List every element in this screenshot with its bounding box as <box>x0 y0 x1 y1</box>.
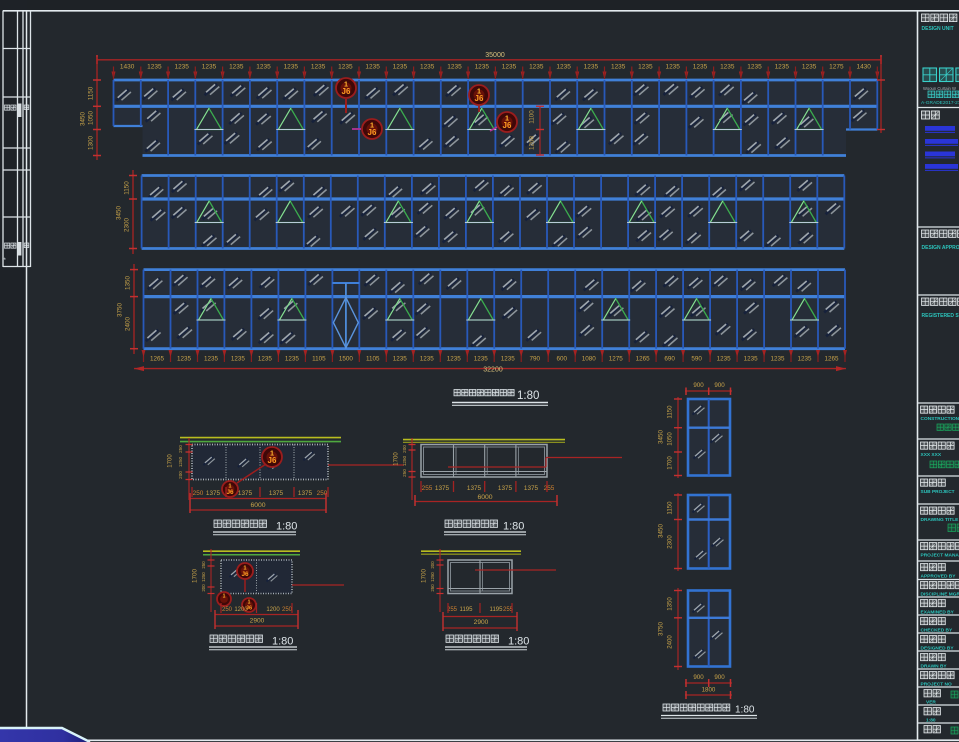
svg-text:1235: 1235 <box>475 64 490 71</box>
svg-text:250: 250 <box>282 607 293 613</box>
svg-text:J6: J6 <box>226 489 234 496</box>
svg-text:1235: 1235 <box>229 64 244 71</box>
svg-text:900: 900 <box>714 382 725 389</box>
svg-text:1700: 1700 <box>667 456 674 470</box>
svg-text:1235: 1235 <box>365 64 380 71</box>
svg-text:DISCIPLINE MGR: DISCIPLINE MGR <box>921 592 959 598</box>
svg-text:1:80: 1:80 <box>517 390 539 402</box>
svg-text:1:80: 1:80 <box>276 521 297 533</box>
svg-text:1235: 1235 <box>393 356 408 363</box>
svg-text:250: 250 <box>201 561 206 569</box>
svg-text:1150: 1150 <box>124 181 131 195</box>
svg-text:1375: 1375 <box>467 485 482 492</box>
svg-text:1700: 1700 <box>421 569 428 584</box>
svg-text:1235: 1235 <box>231 356 246 363</box>
svg-text:Wooun Curtain W: Wooun Curtain W <box>923 86 956 91</box>
svg-text:1235: 1235 <box>802 64 817 71</box>
svg-text:1275: 1275 <box>609 356 624 363</box>
svg-text:6000: 6000 <box>250 502 265 509</box>
svg-text:1235: 1235 <box>638 64 653 71</box>
svg-text:1235: 1235 <box>256 64 271 71</box>
svg-text:1235: 1235 <box>258 356 273 363</box>
svg-text:DRAWN BY: DRAWN BY <box>921 664 948 670</box>
svg-text:1250: 1250 <box>430 572 435 582</box>
svg-text:1050: 1050 <box>88 111 95 126</box>
svg-text:1235: 1235 <box>665 64 680 71</box>
svg-text:250: 250 <box>402 469 407 477</box>
svg-text:3450: 3450 <box>80 112 87 127</box>
svg-text:3750: 3750 <box>658 622 665 637</box>
svg-text:J6: J6 <box>503 121 512 130</box>
svg-text:2900: 2900 <box>474 619 489 626</box>
svg-text:1235: 1235 <box>204 356 219 363</box>
svg-text:1235: 1235 <box>420 356 435 363</box>
svg-text:1235: 1235 <box>529 64 544 71</box>
svg-text:J6: J6 <box>475 94 484 103</box>
svg-text:1080: 1080 <box>582 356 597 363</box>
svg-text:1150: 1150 <box>88 86 95 100</box>
svg-text:1235: 1235 <box>447 64 462 71</box>
svg-text:3450: 3450 <box>658 430 665 445</box>
svg-text:1250: 1250 <box>402 455 407 466</box>
svg-text:1235: 1235 <box>556 64 571 71</box>
svg-text:1050: 1050 <box>667 432 674 446</box>
svg-text:1375: 1375 <box>498 485 513 492</box>
svg-text:1268: 1268 <box>529 136 536 151</box>
svg-text:SUB PROJECT: SUB PROJECT <box>921 489 955 495</box>
svg-text:1235: 1235 <box>311 64 326 71</box>
svg-text:1235: 1235 <box>285 356 300 363</box>
svg-text:255: 255 <box>422 485 433 492</box>
svg-text:1235: 1235 <box>775 64 790 71</box>
svg-text:1700: 1700 <box>192 569 199 584</box>
svg-text:250: 250 <box>178 445 183 453</box>
svg-text:1235: 1235 <box>202 64 217 71</box>
svg-text:J6: J6 <box>368 128 377 137</box>
svg-text:2300: 2300 <box>667 535 674 549</box>
svg-text:900: 900 <box>693 674 704 681</box>
svg-text:1235: 1235 <box>797 356 812 363</box>
svg-text:1105: 1105 <box>366 356 380 363</box>
svg-text:1235: 1235 <box>717 356 732 363</box>
svg-text:1235: 1235 <box>501 356 516 363</box>
svg-text:1235: 1235 <box>174 64 189 71</box>
svg-text:1:80: 1:80 <box>272 636 293 648</box>
svg-text:1375: 1375 <box>524 485 539 492</box>
svg-text:6000: 6000 <box>477 494 492 501</box>
svg-text:1150: 1150 <box>667 501 674 515</box>
svg-text:250: 250 <box>430 584 435 592</box>
svg-text:1500: 1500 <box>339 356 354 363</box>
svg-text:1235: 1235 <box>611 64 626 71</box>
svg-text:1235: 1235 <box>447 356 462 363</box>
svg-text:1235: 1235 <box>584 64 599 71</box>
svg-text:1100: 1100 <box>529 110 536 124</box>
svg-text:1375: 1375 <box>269 490 284 497</box>
svg-text:1700: 1700 <box>394 452 400 466</box>
svg-text:1375: 1375 <box>298 490 313 497</box>
svg-text:1250: 1250 <box>178 456 183 467</box>
svg-text:1800: 1800 <box>702 687 716 694</box>
svg-text:200: 200 <box>402 445 407 453</box>
svg-text:1350: 1350 <box>125 276 132 291</box>
svg-text:2900: 2900 <box>250 618 265 625</box>
svg-text:1265: 1265 <box>824 356 839 363</box>
svg-text:1375: 1375 <box>435 485 450 492</box>
svg-text:PROJECT NO: PROJECT NO <box>921 682 952 688</box>
svg-text:1235: 1235 <box>284 64 299 71</box>
svg-text:1235: 1235 <box>502 64 517 71</box>
svg-text:PROJECT MANAGER: PROJECT MANAGER <box>921 553 959 559</box>
svg-text:1:80: 1:80 <box>508 636 529 648</box>
svg-text:1235: 1235 <box>744 356 759 363</box>
svg-text:1235: 1235 <box>747 64 762 71</box>
svg-text:J6: J6 <box>342 87 351 96</box>
svg-text:32200: 32200 <box>483 367 503 374</box>
svg-text:REGISTERED SEAL: REGISTERED SEAL <box>922 313 959 319</box>
svg-text:35000: 35000 <box>485 52 505 59</box>
svg-text:A-GRADE2017-27: A-GRADE2017-27 <box>921 100 959 106</box>
svg-text:3750: 3750 <box>117 303 124 318</box>
svg-text:1300: 1300 <box>88 136 95 151</box>
svg-text:DESIGNED BY: DESIGNED BY <box>921 646 955 652</box>
svg-text:590: 590 <box>691 356 702 363</box>
svg-text:1200: 1200 <box>266 607 280 613</box>
svg-text:3450: 3450 <box>116 206 123 221</box>
svg-text:1:80: 1:80 <box>503 521 524 533</box>
svg-text:1375: 1375 <box>206 490 221 497</box>
svg-text:1235: 1235 <box>770 356 785 363</box>
svg-text:250: 250 <box>193 490 204 497</box>
svg-text:200: 200 <box>201 584 206 592</box>
svg-text:1430: 1430 <box>120 64 135 71</box>
svg-text:1275: 1275 <box>829 64 844 71</box>
svg-text:1235: 1235 <box>177 356 192 363</box>
svg-text:2400: 2400 <box>125 317 132 332</box>
svg-text:900: 900 <box>714 674 725 681</box>
svg-text:EXAMINED BY: EXAMINED BY <box>921 610 955 616</box>
svg-text:1:80: 1:80 <box>926 718 936 724</box>
svg-text:DESIGN APPROVAL: DESIGN APPROVAL <box>922 245 959 251</box>
svg-text:1:80: 1:80 <box>735 705 755 716</box>
svg-text:CONSTRUCTION: CONSTRUCTION <box>921 416 959 422</box>
svg-text:200: 200 <box>430 561 435 569</box>
svg-text:690: 690 <box>664 356 675 363</box>
svg-text:1250: 1250 <box>201 572 206 582</box>
svg-text:1235: 1235 <box>420 64 435 71</box>
svg-text:1200: 1200 <box>234 607 248 613</box>
svg-text:900: 900 <box>693 382 704 389</box>
svg-text:1235: 1235 <box>393 64 408 71</box>
svg-text:2300: 2300 <box>124 218 131 233</box>
svg-text:1235: 1235 <box>720 64 735 71</box>
svg-text:1235: 1235 <box>338 64 353 71</box>
svg-text:J6: J6 <box>241 571 249 578</box>
svg-text:1235: 1235 <box>474 356 489 363</box>
svg-text:1350: 1350 <box>667 597 674 611</box>
svg-text:1105: 1105 <box>312 356 326 363</box>
svg-text:1195: 1195 <box>460 607 474 613</box>
svg-text:600: 600 <box>556 356 567 363</box>
svg-text:1150: 1150 <box>667 405 674 419</box>
svg-text:1700: 1700 <box>168 454 174 468</box>
svg-text:J6: J6 <box>268 456 277 465</box>
svg-text:255: 255 <box>544 485 555 492</box>
svg-text:VER: VER <box>926 700 936 706</box>
svg-text:1195: 1195 <box>490 607 504 613</box>
svg-text:CHECKED BY: CHECKED BY <box>921 628 954 634</box>
svg-text:DESIGN UNIT: DESIGN UNIT <box>922 26 954 32</box>
svg-text:1265: 1265 <box>636 356 651 363</box>
svg-text:1: 1 <box>223 594 226 600</box>
svg-text:1235: 1235 <box>693 64 708 71</box>
svg-text:2400: 2400 <box>667 635 674 649</box>
svg-text:790: 790 <box>529 356 540 363</box>
svg-text:1430: 1430 <box>856 64 871 71</box>
svg-text:1235: 1235 <box>147 64 162 71</box>
svg-text:1375: 1375 <box>238 490 253 497</box>
svg-text:3450: 3450 <box>658 524 665 539</box>
svg-text:200: 200 <box>178 471 183 479</box>
svg-text:1265: 1265 <box>150 356 165 363</box>
svg-text:250: 250 <box>222 607 233 613</box>
svg-text:XXX XXX: XXX XXX <box>921 452 942 458</box>
svg-text:APPROVED BY: APPROVED BY <box>921 574 957 580</box>
svg-text:DRAWING TITLE: DRAWING TITLE <box>921 517 959 523</box>
